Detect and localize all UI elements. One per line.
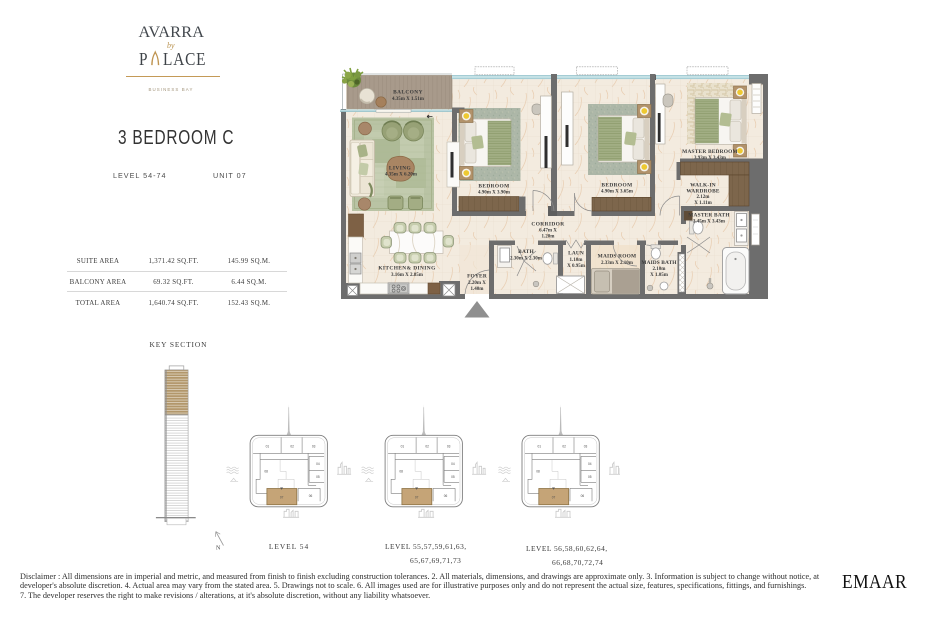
svg-text:MASTER BATH: MASTER BATH — [688, 213, 730, 219]
svg-text:BEDROOM: BEDROOM — [478, 183, 509, 189]
svg-text:2.10m: 2.10m — [653, 267, 667, 272]
svg-text:N: N — [216, 546, 221, 552]
svg-text:1.40m: 1.40m — [471, 287, 485, 292]
svg-text:LAUN: LAUN — [568, 251, 584, 257]
svg-text:3.45m X 3.43m: 3.45m X 3.43m — [693, 220, 726, 225]
svg-text:MASTER BEDROOM: MASTER BEDROOM — [682, 149, 738, 155]
svg-text:4.35m X 6.20m: 4.35m X 6.20m — [385, 173, 418, 178]
svg-text:MAIDS BATH: MAIDS BATH — [641, 260, 677, 266]
svg-text:WARDROBE: WARDROBE — [686, 189, 720, 195]
svg-text:MAIDS ROOM: MAIDS ROOM — [598, 254, 637, 260]
svg-text:BALCONY: BALCONY — [393, 90, 423, 96]
svg-text:2.33m X 2.10m: 2.33m X 2.10m — [601, 261, 634, 266]
svg-text:4.35m X 1.51m: 4.35m X 1.51m — [392, 97, 425, 102]
svg-text:CORRIDOR: CORRIDOR — [531, 221, 564, 227]
svg-text:2.30m X 2.30m: 2.30m X 2.30m — [510, 256, 543, 261]
svg-text:3.93m X 3.43m: 3.93m X 3.43m — [694, 156, 727, 161]
svg-text:1.10m: 1.10m — [570, 258, 584, 263]
svg-text:1.20m: 1.20m — [542, 234, 556, 239]
svg-text:BEDROOM: BEDROOM — [601, 182, 632, 188]
svg-text:LIVING: LIVING — [389, 166, 412, 172]
svg-text:X 1.05m: X 1.05m — [650, 273, 669, 278]
svg-text:X 1.11m: X 1.11m — [694, 201, 712, 206]
svg-text:2.20m X: 2.20m X — [468, 281, 486, 286]
svg-text:KITCHEN& DINING: KITCHEN& DINING — [378, 266, 436, 272]
svg-text:FOYER: FOYER — [467, 274, 487, 280]
svg-text:3.16m X 2.85m: 3.16m X 2.85m — [391, 273, 424, 278]
svg-text:2.12m: 2.12m — [697, 195, 711, 200]
svg-text:6.47m X: 6.47m X — [539, 229, 557, 234]
svg-text:4.90m X 3.65m: 4.90m X 3.65m — [601, 190, 634, 195]
svg-text:WALK-IN: WALK-IN — [690, 182, 716, 188]
svg-text:4.90m X 3.90m: 4.90m X 3.90m — [478, 191, 511, 196]
svg-text:BATH: BATH — [518, 249, 534, 255]
svg-text:X 0.95m: X 0.95m — [567, 264, 586, 269]
